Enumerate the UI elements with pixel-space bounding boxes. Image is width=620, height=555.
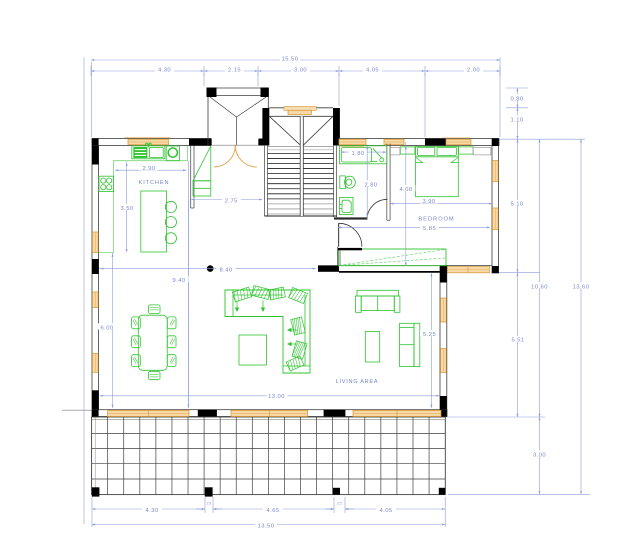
svg-text:2.75: 2.75 xyxy=(225,198,238,204)
svg-text:2.80: 2.80 xyxy=(364,183,377,189)
svg-text:5.25: 5.25 xyxy=(423,332,436,338)
svg-text:13.50: 13.50 xyxy=(258,523,275,529)
svg-text:5.10: 5.10 xyxy=(510,202,523,208)
svg-text:3.90: 3.90 xyxy=(422,199,435,205)
svg-text:6.00: 6.00 xyxy=(100,325,113,331)
svg-text:2.90: 2.90 xyxy=(142,166,155,172)
svg-text:1.10: 1.10 xyxy=(510,117,523,123)
svg-text:3.50: 3.50 xyxy=(120,206,133,212)
svg-text:5.51: 5.51 xyxy=(511,338,524,344)
svg-text:2.00: 2.00 xyxy=(467,67,480,73)
svg-text:4.05: 4.05 xyxy=(379,508,392,514)
svg-text:8.40: 8.40 xyxy=(219,267,232,273)
svg-text:1.80: 1.80 xyxy=(351,151,364,157)
svg-text:5.85: 5.85 xyxy=(423,226,436,232)
svg-text:3.00: 3.00 xyxy=(533,452,546,458)
svg-text:KITCHEN: KITCHEN xyxy=(139,180,170,186)
svg-text:15.50: 15.50 xyxy=(282,56,299,62)
svg-text:4.30: 4.30 xyxy=(158,67,171,73)
svg-text:LIVING AREA: LIVING AREA xyxy=(336,379,379,385)
svg-text:3.00: 3.00 xyxy=(294,67,307,73)
svg-text:10.60: 10.60 xyxy=(531,284,548,290)
svg-text:4.30: 4.30 xyxy=(145,508,158,514)
svg-text:2.15: 2.15 xyxy=(228,67,241,73)
svg-text:4.65: 4.65 xyxy=(266,508,279,514)
svg-text:0.80: 0.80 xyxy=(510,96,523,102)
svg-text:BEDROOM: BEDROOM xyxy=(418,217,454,223)
svg-text:4.05: 4.05 xyxy=(366,67,379,73)
svg-text:25: 25 xyxy=(337,502,342,506)
svg-text:4.00: 4.00 xyxy=(399,187,412,193)
svg-text:25: 25 xyxy=(207,502,212,506)
svg-text:13.60: 13.60 xyxy=(573,284,590,290)
svg-text:9.40: 9.40 xyxy=(172,278,185,284)
svg-text:13.00: 13.00 xyxy=(268,394,285,400)
